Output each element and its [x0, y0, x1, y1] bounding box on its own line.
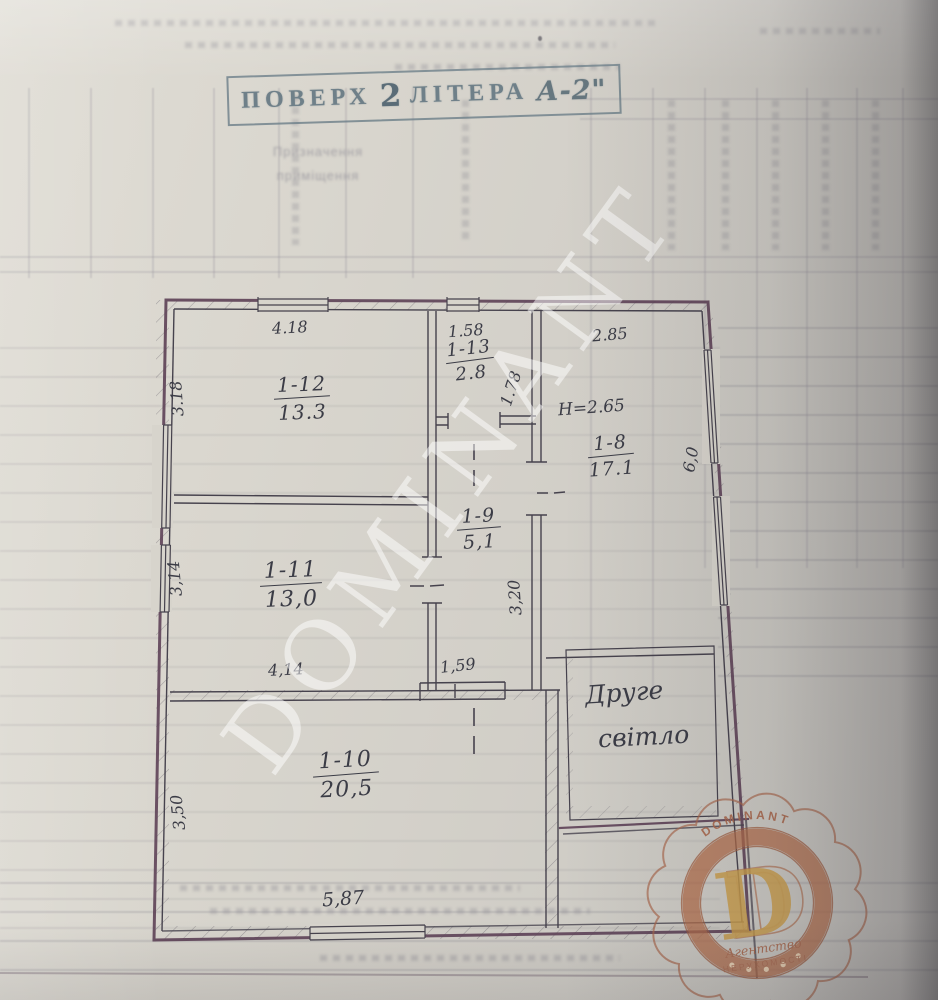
- agency-stamp: DOMINANT D D Агентство НЕРУХОМОСТІ: [0, 0, 938, 1000]
- scanned-floor-plan-page: Призначення приміщення: [0, 0, 938, 1000]
